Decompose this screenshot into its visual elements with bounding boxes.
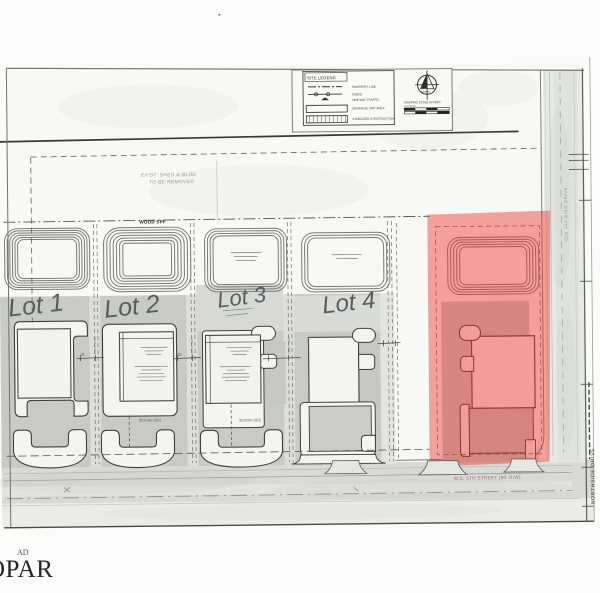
svg-text:WOOD SPF: WOOD SPF xyxy=(139,219,166,224)
svg-text:NORTHSIDE DRIVE: NORTHSIDE DRIVE xyxy=(590,448,597,505)
svg-text:NORTH: NORTH xyxy=(421,90,430,94)
svg-text:DRAINAGE UNIT AREA: DRAINAGE UNIT AREA xyxy=(352,106,384,110)
svg-text:ONE WAY TRAFFIC: ONE WAY TRAFFIC xyxy=(352,98,380,102)
svg-text:FIRST AVE: FIRST AVE xyxy=(190,338,194,355)
svg-text:85X160 (AD): 85X160 (AD) xyxy=(139,418,162,422)
svg-text:0 10 20: 0 10 20 40 xyxy=(404,105,416,108)
svg-text:SITE LEGEND: SITE LEGEND xyxy=(307,75,336,80)
svg-text:85X160 (AD): 85X160 (AD) xyxy=(239,418,262,422)
svg-text:PROPERTY LINE: PROPERTY LINE xyxy=(352,85,376,89)
svg-text:30': 30' xyxy=(81,353,86,357)
svg-text:FIRST AVE: FIRST AVE xyxy=(287,337,291,354)
svg-text:FIRST AVE: FIRST AVE xyxy=(93,337,97,354)
svg-text:FENCE: FENCE xyxy=(352,92,362,96)
svg-text:ÓPAR: ÓPAR xyxy=(0,555,53,583)
svg-text:GRAPHIC SCALE IN FEET: GRAPHIC SCALE IN FEET xyxy=(404,100,441,104)
svg-text:30': 30' xyxy=(178,353,183,357)
svg-text:STABILIZED CONSTRUCTION: STABILIZED CONSTRUCTION xyxy=(352,117,394,121)
